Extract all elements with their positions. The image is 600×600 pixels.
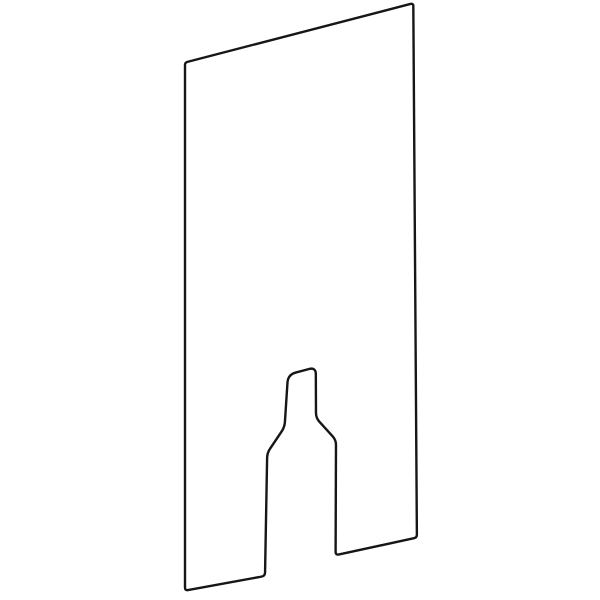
drawing-canvas	[0, 0, 600, 600]
panel-outline-with-cutout	[185, 4, 417, 590]
technical-drawing	[0, 0, 600, 600]
